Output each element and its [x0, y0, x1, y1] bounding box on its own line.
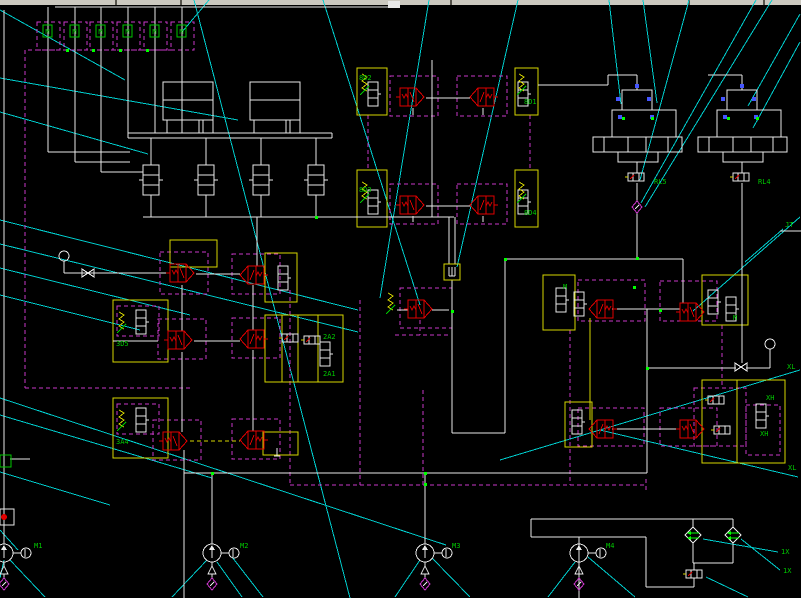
drawing-canvas[interactable]: MMMMMM8D28D18D38D4RL5RL4JTMM3D53A42A22A1… [0, 0, 801, 598]
grip-point [635, 84, 639, 88]
label: M2 [240, 542, 248, 550]
junction-dot [315, 216, 318, 219]
label: 8D3 [359, 186, 372, 194]
alarm-dot [1, 514, 7, 520]
grip-point [616, 97, 620, 101]
junction-dot [504, 258, 507, 261]
junction-dot [119, 49, 122, 52]
label: M4 [606, 542, 614, 550]
label: M [733, 314, 737, 322]
junction-dot [66, 49, 69, 52]
label: XL [787, 363, 795, 371]
shape: M [45, 28, 49, 36]
junction-dot [646, 367, 649, 370]
frame-mark [388, 1, 400, 8]
label: JT [785, 221, 794, 229]
junction-dot [756, 117, 759, 120]
label: 8D1 [524, 98, 537, 106]
junction-dot [146, 49, 149, 52]
label: XL [788, 464, 796, 472]
grip-point [647, 97, 651, 101]
junction-dot [633, 286, 636, 289]
shape: M [152, 28, 156, 36]
junction-dot [727, 117, 730, 120]
junction-dot [651, 117, 654, 120]
grip-point [723, 115, 727, 119]
label: XH [760, 430, 768, 438]
label: 8D2 [359, 74, 372, 82]
label: 1X [783, 567, 792, 575]
junction-dot [424, 483, 427, 486]
grip-point [721, 97, 725, 101]
shape: M [72, 28, 76, 36]
grip-point [752, 97, 756, 101]
junction-dot [424, 472, 427, 475]
label: 3D5 [116, 340, 129, 348]
cad-viewport[interactable]: MMMMMM8D28D18D38D4RL5RL4JTMM3D53A42A22A1… [0, 0, 801, 598]
label: RL4 [758, 178, 771, 186]
grip-point [740, 84, 744, 88]
junction-dot [659, 309, 662, 312]
shape: M [98, 28, 102, 36]
label: 8D4 [524, 209, 537, 217]
label: 2A2 [323, 333, 336, 341]
label: 3A4 [116, 438, 129, 446]
shape: M [179, 28, 183, 36]
grip-point [618, 115, 622, 119]
toolbar-tick [763, 0, 765, 5]
shape: M [125, 28, 129, 36]
label: M [563, 283, 567, 291]
label: 1X [781, 548, 790, 556]
junction-dot [211, 472, 214, 475]
label: 2A1 [323, 370, 336, 378]
label: M1 [34, 542, 42, 550]
label: XH [766, 394, 774, 402]
junction-dot [622, 117, 625, 120]
junction-dot [451, 310, 454, 313]
toolbar-tick [115, 0, 117, 5]
label: M3 [452, 542, 460, 550]
label: RL5 [654, 178, 667, 186]
toolbar-tick [450, 0, 452, 5]
junction-dot [92, 49, 95, 52]
toolbar-strip [0, 0, 801, 5]
toolbar-tick [180, 0, 182, 5]
junction-dot [636, 257, 639, 260]
